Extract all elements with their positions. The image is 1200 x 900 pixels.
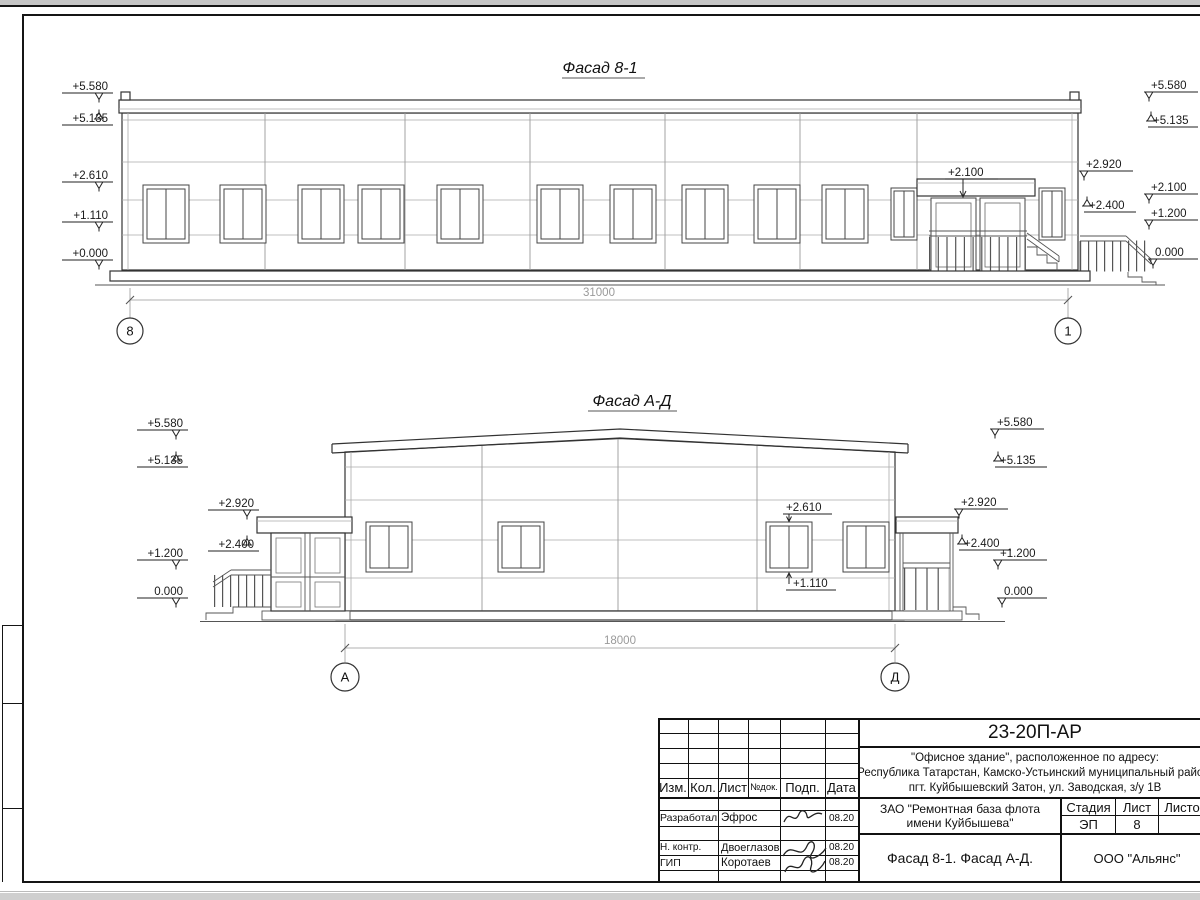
stage-label: Стадия (1062, 799, 1115, 815)
elevation-mark: +2.610 (73, 170, 109, 182)
object-address: "Офисное здание", расположенное по адрес… (858, 749, 1200, 797)
elevation-mark: +5.580 (1151, 80, 1187, 92)
facade-a-d-left-marks: +5.580 +5.135 +2.920 +2.400 +1.200 0.000 (137, 418, 259, 608)
elevation-mark: +5.135 (1000, 455, 1036, 467)
facade-8-1-right-marks: +5.580 +5.135 +2.920 +2.100 +2.400 +1.20… (1079, 80, 1198, 269)
doc-number: 23-20П-АР (858, 720, 1200, 746)
elevation-mark: +2.100 (948, 167, 984, 179)
signer-name: Двоеглазов (721, 840, 780, 855)
company: ООО "Альянс" (1062, 835, 1200, 881)
paper-bottom-edge (0, 891, 1200, 892)
elevation-mark: +2.400 (964, 538, 1000, 550)
sheet-title: Фасад 8-1. Фасад А-Д. (860, 835, 1060, 881)
facade-8-1-dimension: 31000 8 1 (117, 287, 1081, 344)
facade-8-1-left-marks: +5.580 +5.135 +2.610 +1.110 +0.000 (62, 81, 113, 270)
elevation-mark: +5.580 (148, 418, 184, 430)
signatures (780, 804, 828, 879)
facade-a-d-left-railing (206, 570, 271, 620)
col-podp: Подп. (780, 778, 825, 797)
elevation-mark: 0.000 (1004, 586, 1033, 598)
col-list: Лист (718, 778, 748, 797)
drawing-sheet: { "facade1": { "title": "Фасад 8-1", "le… (0, 0, 1200, 900)
elevation-mark: +1.200 (1151, 208, 1187, 220)
elevation-mark: +2.610 (786, 502, 822, 514)
signature (783, 842, 826, 858)
signer-name: Эфрос (721, 810, 780, 826)
elevation-mark: +1.110 (793, 578, 828, 590)
signer-name: Коротаев (721, 855, 780, 870)
facade-a-d-right-porch (896, 517, 979, 620)
signer-role: Н. контр. (660, 840, 718, 855)
client-line: ЗАО "Ремонтная база флота (880, 802, 1040, 816)
facade-8-1-building (95, 92, 1165, 285)
stage-value: ЭП (1062, 816, 1115, 833)
elevation-mark: 0.000 (1155, 247, 1184, 259)
client-line: имени Куйбышева" (907, 816, 1014, 830)
facade-8-1-ramp-railing (1080, 236, 1156, 285)
col-ndok: №док. (748, 778, 780, 797)
facade-a-d-dimension: 18000 А Д (331, 624, 909, 691)
elevation-mark: +2.920 (961, 497, 997, 509)
facades-drawing: Фасад 8-1 (0, 0, 1200, 712)
col-izm: Изм. (658, 778, 688, 797)
signer-date: 08.20 (825, 840, 858, 855)
address-line: "Офисное здание", расположенное по адрес… (911, 751, 1159, 766)
elevation-mark: +2.920 (1086, 159, 1122, 171)
margin-box-line (2, 808, 22, 809)
elevation-mark: +1.200 (148, 548, 184, 560)
address-line: пгт. Куйбышевский Затон, ул. Заводская, … (909, 781, 1162, 796)
facade-8-1-title: Фасад 8-1 (563, 60, 638, 77)
signer-role: ГИП (660, 855, 718, 870)
facade-8-1: Фасад 8-1 (62, 60, 1198, 344)
signer-date: 08.20 (825, 810, 858, 826)
facade-a-d: Фасад А-Д (137, 393, 1047, 691)
signature (784, 811, 822, 822)
facade-a-d-vestibule (257, 517, 352, 611)
col-kol: Кол. (688, 778, 718, 797)
elevation-mark: +1.200 (1000, 548, 1036, 560)
title-block: Изм. Кол. Лист №док. Подп. Дата Разработ… (658, 718, 1200, 881)
dimension-label: 18000 (604, 635, 636, 647)
axis-label: 1 (1064, 324, 1071, 339)
elevation-mark: +1.110 (73, 210, 108, 222)
elevation-mark: +2.100 (1151, 182, 1187, 194)
axis-label: Д (891, 670, 900, 685)
elevation-mark: +0.000 (73, 248, 109, 260)
frame-bottom (22, 881, 1200, 883)
client: ЗАО "Ремонтная база флота имени Куйбышев… (860, 799, 1060, 833)
elevation-mark: 0.000 (154, 586, 183, 598)
facade-a-d-right-marks: +5.580 +5.135 +2.920 +2.400 +1.200 0.000 (954, 417, 1047, 608)
list-value: 8 (1116, 816, 1158, 833)
elevation-mark: +5.580 (73, 81, 109, 93)
axis-label: 8 (126, 324, 133, 339)
listov-label: Листов (1159, 799, 1200, 815)
facade-a-d-building (200, 429, 1005, 622)
elevation-mark: +5.580 (997, 417, 1033, 429)
signature (785, 857, 825, 872)
facade-a-d-title: Фасад А-Д (592, 393, 671, 410)
elevation-mark: +2.920 (219, 498, 255, 510)
dimension-label: 31000 (583, 287, 615, 299)
screen-bottom-strip (0, 893, 1200, 900)
signer-date: 08.20 (825, 855, 858, 870)
elevation-mark: +5.135 (1153, 115, 1189, 127)
signer-role: Разработал (660, 810, 718, 826)
col-data: Дата (825, 778, 858, 797)
address-line: Республика Татарстан, Камско-Устьинский … (857, 766, 1200, 781)
list-label: Лист (1116, 799, 1158, 815)
elevation-mark: +2.400 (1089, 200, 1125, 212)
axis-label: А (341, 670, 350, 685)
